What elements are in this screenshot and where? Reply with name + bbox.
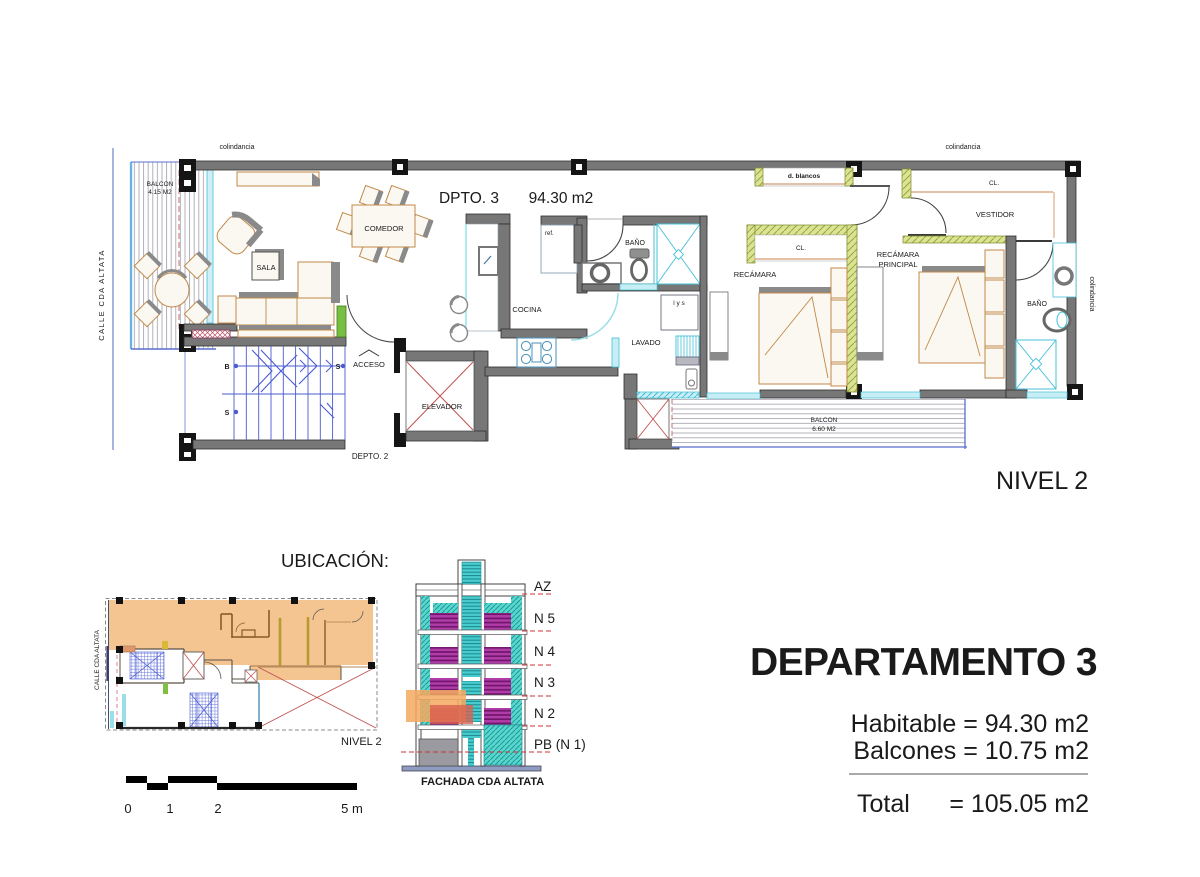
svg-text:N 5: N 5 bbox=[534, 611, 555, 626]
svg-text:1: 1 bbox=[166, 801, 173, 816]
svg-text:N 2: N 2 bbox=[534, 706, 555, 721]
svg-text:COMEDOR: COMEDOR bbox=[364, 224, 404, 233]
svg-text:UBICACIÓN:: UBICACIÓN: bbox=[281, 550, 389, 571]
svg-text:PRINCIPAL: PRINCIPAL bbox=[878, 260, 917, 269]
svg-text:d. blancos: d. blancos bbox=[788, 173, 821, 180]
svg-text:2: 2 bbox=[214, 801, 221, 816]
svg-text:NIVEL 2: NIVEL 2 bbox=[996, 467, 1088, 495]
svg-text:VESTIDOR: VESTIDOR bbox=[976, 210, 1015, 219]
svg-text:AZ: AZ bbox=[534, 579, 551, 594]
svg-text:COCINA: COCINA bbox=[512, 305, 541, 314]
svg-text:FACHADA CDA ALTATA: FACHADA CDA ALTATA bbox=[421, 776, 544, 788]
svg-text:= 105.05 m2: = 105.05 m2 bbox=[949, 790, 1089, 818]
svg-text:ref.: ref. bbox=[545, 231, 554, 237]
svg-text:0: 0 bbox=[124, 801, 131, 816]
svg-text:BAÑO: BAÑO bbox=[1027, 299, 1047, 308]
svg-text:94.30 m2: 94.30 m2 bbox=[529, 190, 594, 207]
svg-text:colindancia: colindancia bbox=[219, 144, 254, 151]
svg-text:BALCON: BALCON bbox=[811, 417, 838, 424]
svg-text:ACCESO: ACCESO bbox=[353, 360, 385, 369]
svg-text:6.60 M2: 6.60 M2 bbox=[812, 426, 836, 433]
svg-text:S: S bbox=[336, 364, 341, 371]
svg-text:CALLE CDA ALTATA: CALLE CDA ALTATA bbox=[94, 629, 101, 690]
svg-text:4.15 M2: 4.15 M2 bbox=[148, 189, 172, 196]
svg-text:DPTO. 3: DPTO. 3 bbox=[439, 190, 499, 207]
svg-text:DEPTO. 2: DEPTO. 2 bbox=[352, 452, 389, 461]
svg-text:colindancia: colindancia bbox=[1088, 276, 1095, 311]
svg-text:PB (N 1): PB (N 1) bbox=[534, 737, 586, 752]
svg-text:BAÑO: BAÑO bbox=[625, 238, 645, 247]
svg-text:5 m: 5 m bbox=[341, 801, 363, 816]
svg-text:S: S bbox=[225, 410, 230, 417]
svg-text:N 3: N 3 bbox=[534, 675, 555, 690]
svg-text:RECÁMARA: RECÁMARA bbox=[734, 270, 777, 279]
svg-text:RECÁMARA: RECÁMARA bbox=[877, 250, 920, 259]
svg-text:SALA: SALA bbox=[256, 263, 275, 272]
svg-text:CL.: CL. bbox=[989, 180, 999, 187]
svg-text:l y s: l y s bbox=[673, 300, 685, 307]
svg-text:Habitable = 94.30 m2: Habitable = 94.30 m2 bbox=[851, 710, 1089, 738]
svg-text:CL.: CL. bbox=[796, 245, 806, 252]
svg-text:BALCON: BALCON bbox=[147, 181, 174, 188]
svg-text:NIVEL 2: NIVEL 2 bbox=[341, 736, 382, 748]
svg-text:DEPARTAMENTO 3: DEPARTAMENTO 3 bbox=[750, 641, 1097, 684]
svg-text:ELEVADOR: ELEVADOR bbox=[422, 402, 463, 411]
svg-text:Balcones = 10.75 m2: Balcones = 10.75 m2 bbox=[853, 737, 1089, 765]
svg-text:B: B bbox=[224, 364, 229, 371]
svg-text:colindancia: colindancia bbox=[945, 144, 980, 151]
svg-text:Total: Total bbox=[857, 790, 910, 818]
svg-text:LAVADO: LAVADO bbox=[631, 338, 660, 347]
svg-text:N 4: N 4 bbox=[534, 644, 556, 659]
svg-text:CALLE CDA ALTATA: CALLE CDA ALTATA bbox=[97, 249, 106, 340]
